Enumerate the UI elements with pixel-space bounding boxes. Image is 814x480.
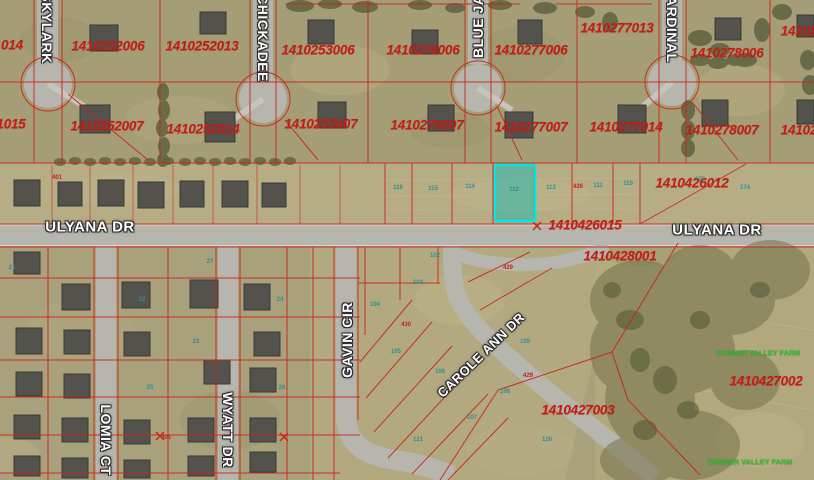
parcel-id-label: 1410252007 xyxy=(70,119,143,133)
parcel-id-label: 1410276007 xyxy=(390,118,463,132)
lot-number-label: 121 xyxy=(413,437,423,443)
lot-number-label: 22 xyxy=(139,297,146,303)
lot-number-label: 107 xyxy=(467,415,477,421)
parcel-id-label: 14102 xyxy=(781,24,814,38)
lot-number-label: 174 xyxy=(740,185,750,191)
lot-number-label: 112 xyxy=(546,185,556,191)
subdivision-name-label: CONNER VALLEY FARM xyxy=(716,351,801,358)
lot-number-label: 426 xyxy=(573,184,583,190)
street-name-label: LOMIA CT xyxy=(99,404,113,475)
lot-number-label: 429 xyxy=(523,373,533,379)
parcel-id-label: 1410252013 xyxy=(165,39,238,53)
parcel-id-label: 1410278007 xyxy=(685,123,758,137)
street-name-label: CARDINAL xyxy=(665,0,679,63)
parcel-id-label: 1410428001 xyxy=(583,249,656,263)
street-name-label: SKYLARK xyxy=(40,0,54,64)
parcel-id-label: 1410253006 xyxy=(281,43,354,57)
lot-number-label: 109 xyxy=(520,339,530,345)
lot-number-label: 405 xyxy=(161,435,171,441)
parcel-id-label: 1410426012 xyxy=(655,176,728,190)
parcel-id-label: 1410427003 xyxy=(541,403,614,417)
parcel-id-label: 1410277006 xyxy=(494,43,567,57)
lot-number-label: 120 xyxy=(542,437,552,443)
parcel-id-label: 1410278006 xyxy=(690,46,763,60)
street-name-label: ULYANA DR xyxy=(672,223,762,238)
lot-number-label: 27 xyxy=(207,259,214,265)
lot-number-label: 110 xyxy=(623,181,633,187)
street-name-label: BLUE JAY xyxy=(471,0,485,58)
lot-number-label: 401 xyxy=(52,175,62,181)
parcel-id-label: 1410252014 xyxy=(166,122,239,136)
subdivision-name-label: CONNER VALLEY FARM xyxy=(708,460,793,467)
parcel-map-canvas[interactable]: 0141410252006141025201314102530061410276… xyxy=(0,0,814,480)
parcel-id-label: 1410277014 xyxy=(589,120,662,134)
lot-number-label: 102 xyxy=(430,253,440,259)
lot-number-label: 21 xyxy=(9,265,16,271)
lot-number-label: 106 xyxy=(435,369,445,375)
lot-number-label: 108 xyxy=(500,389,510,395)
lot-number-label: 115 xyxy=(428,186,438,192)
lot-number-label: 113 xyxy=(509,187,519,193)
lot-number-label: 114 xyxy=(465,184,475,190)
parcel-id-label: 014 xyxy=(1,38,23,52)
street-name-label: GAVIN CIR xyxy=(340,302,354,378)
lot-number-label: 104 xyxy=(370,302,380,308)
lot-number-label: 429 xyxy=(503,265,513,271)
parcel-id-label: 1410252006 xyxy=(71,39,144,53)
lot-number-label: 430 xyxy=(401,322,411,328)
lot-number-label: 105 xyxy=(391,349,401,355)
lot-number-label: 26 xyxy=(279,385,286,391)
street-name-label: WYATT DR xyxy=(221,392,235,468)
parcel-id-label: 1410276006 xyxy=(386,43,459,57)
lot-number-label: 111 xyxy=(593,183,602,189)
parcel-id-label: 1410427002 xyxy=(729,374,802,388)
street-name-label: CHICKADEE xyxy=(256,0,270,82)
street-name-label: CAROLE ANN DR xyxy=(435,310,527,399)
parcel-id-label: 1410253007 xyxy=(284,117,357,131)
lot-number-label: 116 xyxy=(393,185,403,191)
parcel-id-label: 1410426015 xyxy=(548,218,621,232)
street-name-label: ULYANA DR xyxy=(45,220,135,235)
lot-number-label: 25 xyxy=(147,385,154,391)
lot-number-label: 103 xyxy=(413,280,423,286)
parcel-id-label: 1410277013 xyxy=(580,21,653,35)
parcel-id-label: 14102 xyxy=(781,123,814,137)
lot-number-label: 23 xyxy=(193,339,200,345)
parcel-id-label: 1410277007 xyxy=(494,120,567,134)
map-label-layer: 0141410252006141025201314102530061410276… xyxy=(0,0,814,480)
lot-number-label: 24 xyxy=(277,297,284,303)
parcel-id-label: 1015 xyxy=(0,117,26,131)
lot-number-label: 173 xyxy=(695,177,705,183)
